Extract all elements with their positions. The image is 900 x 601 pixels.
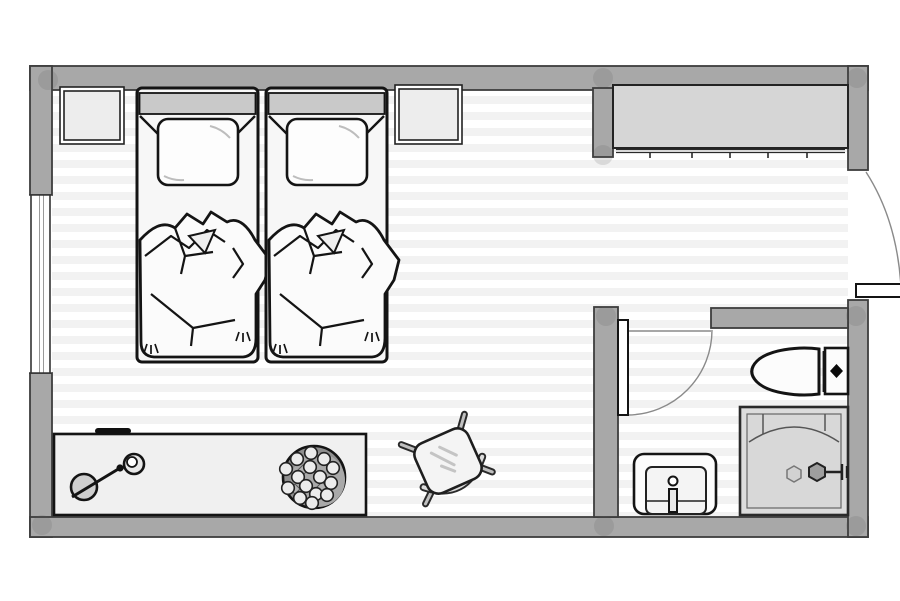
floor-plan-canvas	[0, 0, 900, 601]
toilet[interactable]	[752, 348, 848, 395]
twin-bed-2[interactable]	[266, 88, 399, 362]
wall-right-lower	[848, 300, 868, 537]
bathroom-door-leaf[interactable]	[618, 320, 628, 415]
wall-joint-shade	[593, 145, 613, 165]
wall-left-lower	[30, 373, 52, 537]
nightstand-top	[64, 91, 120, 140]
lamp-bulb	[127, 457, 137, 467]
wall-joint-shade	[846, 516, 866, 536]
entry-door-right[interactable]	[856, 172, 900, 297]
twin-bed-1[interactable]	[137, 88, 270, 362]
entry-door-leaf[interactable]	[856, 284, 900, 297]
closet-body	[613, 85, 848, 148]
wall-joint-shade	[593, 68, 613, 88]
wall-joint-shade	[596, 306, 616, 326]
wall-bottom	[30, 517, 868, 537]
wall-joint-shade	[594, 516, 614, 536]
wall-joint-shade	[846, 306, 866, 326]
entry-door-swing-arc	[866, 172, 900, 287]
pen[interactable]	[95, 428, 131, 434]
nightstand-1[interactable]	[60, 87, 124, 144]
window-opening	[29, 195, 52, 373]
floor-plan-svg	[0, 0, 900, 601]
shower-head	[809, 463, 825, 481]
closet[interactable]	[613, 85, 848, 158]
sink-drain	[669, 477, 678, 486]
sink-faucet	[669, 489, 677, 512]
nightstand-top	[399, 89, 458, 140]
sink[interactable]	[634, 454, 716, 514]
wall-bathroom-partition	[594, 307, 618, 517]
window-left[interactable]	[29, 195, 52, 373]
wall-bathroom-top	[711, 308, 848, 328]
shower-drain	[787, 466, 801, 482]
wall-joint-shade	[847, 68, 867, 88]
lamp-joint	[116, 464, 123, 471]
shower[interactable]	[740, 407, 848, 515]
shower-tray-inner	[747, 414, 841, 508]
wall-joint-shade	[38, 70, 58, 90]
wall-joint-shade	[32, 515, 52, 535]
nightstand-2[interactable]	[395, 85, 462, 144]
